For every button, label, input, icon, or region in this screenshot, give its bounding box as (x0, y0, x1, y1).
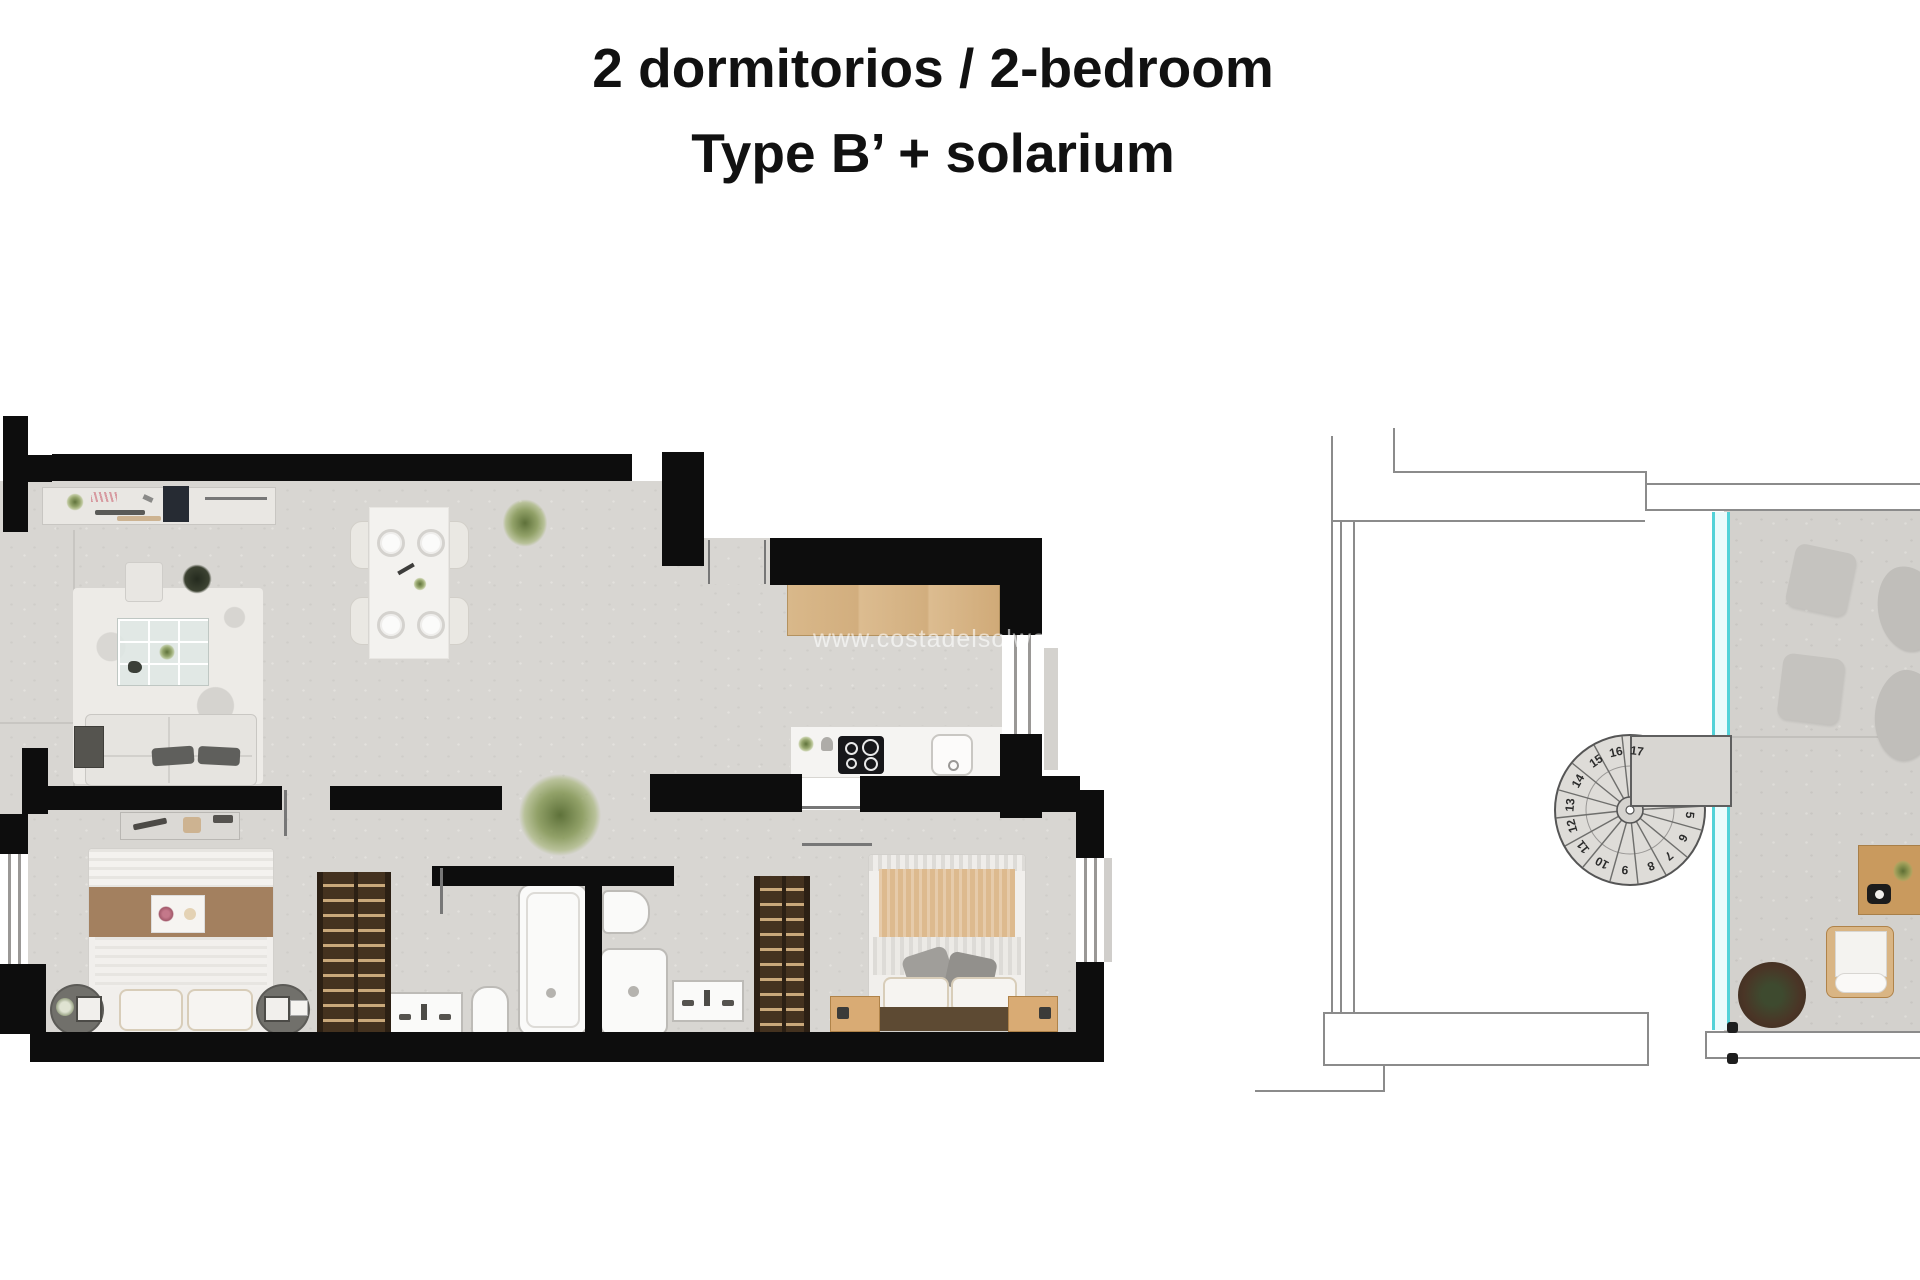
wall-segment (1000, 538, 1042, 635)
stair-step-number: 8 (1645, 858, 1656, 873)
stair-step-number: 7 (1662, 848, 1676, 863)
parapet-wall (1645, 483, 1920, 511)
flowers (158, 906, 174, 922)
bed1-tray (151, 895, 205, 933)
outline-wall (1331, 520, 1645, 522)
sink-drain (948, 760, 959, 771)
cutlery (397, 563, 415, 575)
stair-step-number: 10 (1593, 854, 1611, 873)
bed1-pillow (187, 989, 253, 1031)
wall-segment (602, 866, 674, 886)
outline-wall (1255, 1090, 1385, 1092)
stair-step-number: 12 (1563, 818, 1580, 835)
wardrobe (754, 876, 810, 1032)
window (0, 854, 28, 964)
outline-wall-column (1331, 522, 1355, 1012)
nightstand-flower (56, 998, 74, 1016)
centerpiece (411, 575, 429, 593)
outline-wall (1331, 436, 1333, 522)
burner (845, 742, 858, 755)
spotlight (1727, 1053, 1738, 1064)
bed2-throw (879, 869, 1015, 937)
floor-plan-sheet: 2 dormitorios / 2-bedroom Type B’ + sola… (0, 0, 1920, 1280)
wall-segment (28, 455, 52, 482)
tub-drain (546, 988, 556, 998)
soap (722, 1000, 734, 1006)
counter-faucet (821, 737, 833, 751)
side-table-dark (74, 726, 104, 768)
lounge-cushion (1776, 652, 1846, 725)
decor-board (117, 516, 161, 521)
stair-numbers: 5 6 7 8 9 10 11 12 13 14 15 16 17 (1553, 733, 1707, 887)
stair-step-number: 15 (1587, 751, 1606, 770)
stair-step-number: 11 (1574, 838, 1593, 857)
bathtub (518, 884, 588, 1036)
nightstand-deco (76, 996, 102, 1022)
wall-segment (52, 454, 632, 481)
watermark: www.costadelsolwoning.nl (813, 625, 1127, 654)
wall-segment (1076, 962, 1104, 1032)
dark-plant (176, 558, 218, 600)
window-sill (1104, 858, 1112, 962)
pouf (125, 562, 163, 602)
plate (417, 611, 445, 639)
tray (1867, 884, 1891, 904)
sink-vanity (672, 980, 744, 1022)
outline-wall (1393, 428, 1395, 473)
wall-segment (0, 964, 46, 1034)
bed1-footfold (89, 849, 273, 890)
faucet (704, 990, 710, 1006)
soap (399, 1014, 411, 1020)
burner (862, 739, 879, 756)
wardrobe (317, 872, 391, 1034)
wall-segment (585, 866, 602, 1032)
kitchen-counter (790, 726, 1012, 778)
potted-plant (63, 490, 87, 514)
dining-table (368, 506, 450, 660)
kitchen-entry-floor (704, 538, 770, 585)
nightstand (1008, 996, 1058, 1032)
door-frame (708, 540, 710, 584)
wall-segment (860, 776, 1080, 812)
floor-plan-solarium: 5 6 7 8 9 10 11 12 13 14 15 16 17 (1240, 400, 1920, 1120)
door-leaf (802, 806, 860, 809)
knob (1039, 1007, 1051, 1019)
nightstand-deco (264, 996, 290, 1022)
table-plant (1889, 856, 1917, 886)
bed1-sheet (95, 937, 267, 987)
round-planter (1738, 962, 1806, 1028)
stair-step-number: 9 (1621, 863, 1629, 878)
dresser-items (133, 818, 168, 831)
door-frame (764, 540, 766, 584)
stair-step-number: 13 (1562, 798, 1577, 813)
wall-segment (28, 786, 282, 810)
wall-segment (330, 786, 502, 810)
bed-1 (88, 848, 274, 1034)
outline-wall (1393, 471, 1645, 473)
tv-console (42, 487, 276, 525)
parapet-wall (1323, 1012, 1649, 1066)
decor-tray (95, 510, 145, 515)
bed1-pillow (119, 989, 183, 1031)
plate (377, 529, 405, 557)
closet-shelf (802, 843, 872, 846)
floor-seam (0, 722, 74, 724)
tray-dish (184, 908, 196, 920)
counter-plant (795, 733, 817, 755)
cooktop (838, 736, 884, 774)
nightstand-round (50, 984, 104, 1036)
sofa (85, 714, 257, 786)
table-plant (156, 641, 178, 663)
wall-segment (1076, 790, 1104, 858)
corner-plant (494, 490, 556, 556)
soap (439, 1014, 451, 1020)
plate (417, 529, 445, 557)
burner (846, 758, 857, 769)
spotlight (1727, 1022, 1738, 1033)
wall-segment (3, 416, 28, 532)
outdoor-table (1858, 845, 1920, 915)
stair-step-number: 17 (1630, 743, 1645, 759)
lounge-cushion (1784, 542, 1858, 617)
wall-shelf (205, 497, 267, 500)
remote (142, 494, 153, 503)
dresser-decor (213, 815, 233, 823)
nightstand-round (256, 984, 310, 1036)
wall-segment (0, 814, 28, 854)
window-sill (1044, 648, 1058, 770)
stair-step-number: 16 (1608, 744, 1624, 761)
window (1076, 858, 1104, 962)
bed2-base-board (877, 1007, 1017, 1031)
nightstand (830, 996, 880, 1032)
outline-wall (1383, 1064, 1385, 1092)
shower-drain (628, 986, 639, 997)
burner (864, 757, 878, 771)
dresser (120, 812, 240, 840)
tub-inner (526, 892, 580, 1028)
sofa-pillow (198, 746, 241, 766)
bed-2 (868, 854, 1026, 1032)
wall-segment (650, 774, 802, 812)
hall-plant (503, 758, 617, 872)
stair-step-number: 6 (1675, 832, 1691, 844)
table-decor (128, 661, 142, 673)
plate (377, 611, 405, 639)
tv-screen (163, 486, 189, 522)
sofa-pillow (151, 746, 194, 767)
soap (682, 1000, 694, 1006)
nightstand-lamp (290, 1000, 308, 1016)
outdoor-armchair (1826, 926, 1894, 998)
shower (600, 948, 668, 1036)
door-leaf (284, 790, 287, 836)
wall-segment (662, 452, 704, 566)
stair-step-number: 14 (1569, 772, 1588, 790)
wall-segment (22, 748, 48, 814)
stair-step-number: 5 (1683, 811, 1698, 819)
coffee-table (117, 618, 209, 686)
door-leaf (440, 868, 443, 914)
toilet (471, 986, 509, 1038)
kitchen-sink (931, 734, 973, 776)
wall-segment (30, 1032, 1104, 1062)
dresser-decor (183, 817, 201, 833)
decor-sketch (91, 492, 117, 502)
faucet (421, 1004, 427, 1020)
toilet (602, 890, 650, 934)
knob (837, 1007, 849, 1019)
